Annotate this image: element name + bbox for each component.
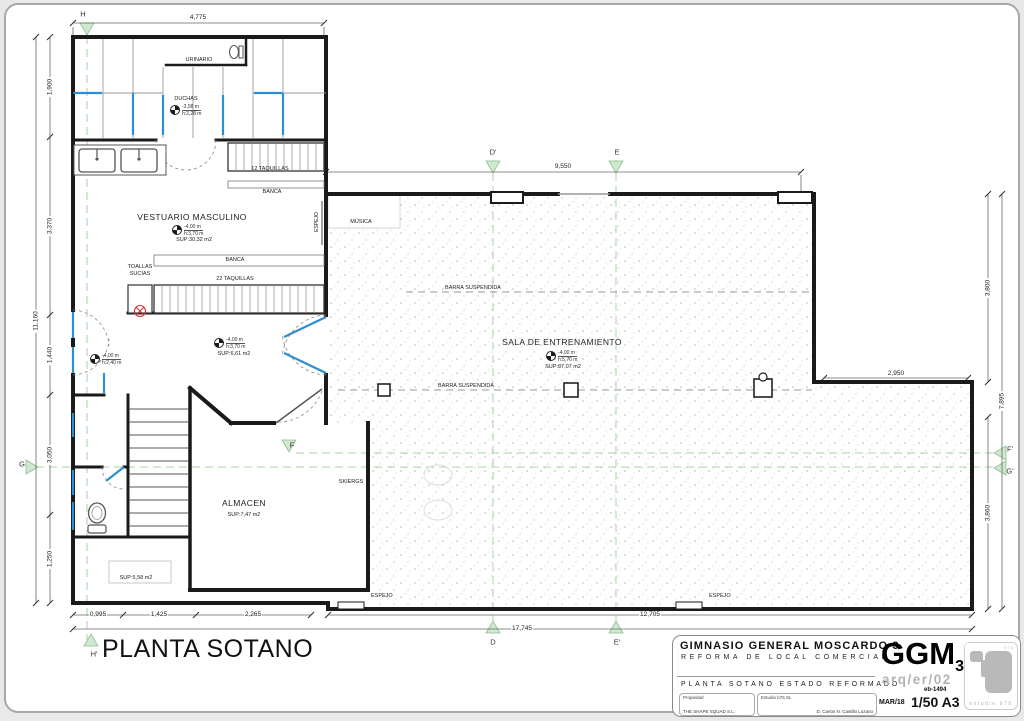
- label-espejo-bottom-2: ESPEJO: [708, 593, 732, 599]
- drawing-scale: 1/50 A3: [911, 694, 960, 710]
- dim-right-horizontal: 2,950: [887, 370, 905, 377]
- level-marker-sala: -4,00 mh:5,70 m: [546, 350, 577, 364]
- level-marker-vestuario: -4,00 mh:3,70 m: [172, 224, 203, 238]
- dim-bottom-1: 0,995: [89, 611, 107, 618]
- level-icon: [546, 351, 556, 361]
- marker-f: F: [290, 441, 295, 450]
- logo-shape-bar: [981, 660, 987, 677]
- label-taquillas-top: 12 TAQUILLAS: [250, 166, 289, 172]
- dim-right-1: 3,800: [985, 278, 992, 298]
- titleblock-divider: [677, 676, 875, 677]
- project-subtitle: REFORMA DE LOCAL COMERCIAL: [681, 654, 889, 661]
- room-label-almacen: ALMACEN: [221, 499, 267, 508]
- dim-top-mid: 9,550: [554, 163, 572, 170]
- area-label-sala: SUP:87,07 m2: [544, 364, 582, 370]
- dim-left-2: 3,370: [47, 216, 54, 236]
- label-barra-1: BARRA SUSPENDIDA: [444, 285, 502, 291]
- dim-top: 4,775: [189, 14, 207, 21]
- label-banca-bottom: BANCA: [225, 257, 246, 263]
- area-label-almacen: SUP:7,47 m2: [227, 512, 262, 518]
- level-icon: [170, 105, 180, 115]
- drawing-code: arq/er/02: [882, 672, 952, 687]
- label-musica: MÚSICA: [349, 219, 372, 225]
- area-label-pasillo: SUP:6,61 m2: [217, 351, 252, 357]
- plan-title: PLANTA SOTANO: [102, 635, 313, 664]
- label-toallas-1: TOALLAS: [127, 264, 154, 270]
- marker-g-prime: G': [1006, 467, 1013, 476]
- label-espejo-vertical: ESPEJO: [314, 210, 320, 234]
- dim-left-total: 11,160: [33, 309, 40, 332]
- area-label-aseo: SUP:5,58 m2: [119, 575, 154, 581]
- marker-d: D: [490, 638, 495, 647]
- sheet-name: PLANTA SOTANO ESTADO REFORMADO: [681, 681, 900, 688]
- studio-logo-text: estudio b76: [965, 701, 1017, 707]
- marker-d-prime: D': [490, 148, 497, 157]
- label-toallas-2: SUCIAS: [129, 271, 151, 277]
- room-label-duchas: DUCHAS: [173, 96, 198, 102]
- studio-label: Estudio b76 SL: [761, 695, 792, 700]
- level-icon: [172, 225, 182, 235]
- dim-bottom-total: 17,745: [511, 625, 533, 632]
- studio-box: Estudio b76 SL D. Carlos N. Castillo Loz…: [757, 693, 877, 716]
- dim-bottom-4: 12,705: [639, 611, 661, 618]
- drawing-sheet: VESTUARIO MASCULINO -4,00 mh:3,70 m SUP:…: [4, 3, 1020, 713]
- project-title: GIMNASIO GENERAL MOSCARDO 3: [680, 640, 900, 652]
- marker-g: G: [19, 460, 25, 469]
- marker-h-prime: H': [91, 650, 98, 659]
- marker-f-prime: F': [1007, 445, 1013, 454]
- level-icon: [90, 354, 100, 364]
- drawing-ref: eb-1494: [924, 687, 946, 693]
- label-barra-2: BARRA SUSPENDIDA: [437, 383, 495, 389]
- drawing-date: MAR/18: [879, 699, 905, 706]
- dim-right-total: 7,895: [999, 391, 1006, 411]
- project-logo: GGM3: [881, 636, 964, 676]
- level-marker-pasillo: -4,00 mh:3,70 m: [214, 337, 245, 351]
- room-label-urinario: URINARIO: [185, 57, 214, 63]
- level-marker-duchas: -3,98 mh:2,28 m: [170, 104, 201, 118]
- dim-bottom-3: 2,265: [244, 611, 262, 618]
- label-taquillas-bottom: 22 TAQUILLAS: [215, 276, 254, 282]
- architect-name: D. Carlos N. Castillo Lozano: [816, 709, 873, 714]
- marker-e-prime: E': [614, 638, 620, 647]
- dim-left-3: 1,440: [47, 345, 54, 365]
- dim-bottom-2: 1,425: [150, 611, 168, 618]
- title-block: GIMNASIO GENERAL MOSCARDO 3 REFORMA DE L…: [672, 635, 1021, 717]
- owner-name: THE SHAPE SQUAD S.L.: [683, 709, 735, 714]
- dim-left-4: 3,050: [47, 445, 54, 465]
- dim-right-2: 3,860: [985, 503, 992, 523]
- dim-left-1: 1,900: [47, 77, 54, 97]
- label-banca-top: BANCA: [262, 189, 283, 195]
- studio-logo-top-text: b76: [1004, 645, 1014, 650]
- studio-logo: b76 estudio b76: [964, 642, 1018, 710]
- area-label-vestuario: SUP:30,32 m2: [175, 237, 213, 243]
- marker-h: H: [80, 10, 85, 19]
- room-label-sala: SALA DE ENTRENAMIENTO: [501, 338, 623, 347]
- level-icon: [214, 338, 224, 348]
- logo-shape-big: [985, 651, 1012, 693]
- label-skiergs: SKIERGS: [338, 479, 364, 485]
- dim-left-5: 1,250: [47, 549, 54, 569]
- label-espejo-bottom-1: ESPEJO: [370, 593, 394, 599]
- room-label-vestuario: VESTUARIO MASCULINO: [136, 213, 248, 222]
- owner-label: Propiedad: [683, 695, 704, 700]
- level-marker-escalera: -4,00 mh:2,40 m: [90, 353, 121, 367]
- owner-box: Propiedad THE SHAPE SQUAD S.L.: [679, 693, 755, 716]
- marker-e: E: [614, 148, 619, 157]
